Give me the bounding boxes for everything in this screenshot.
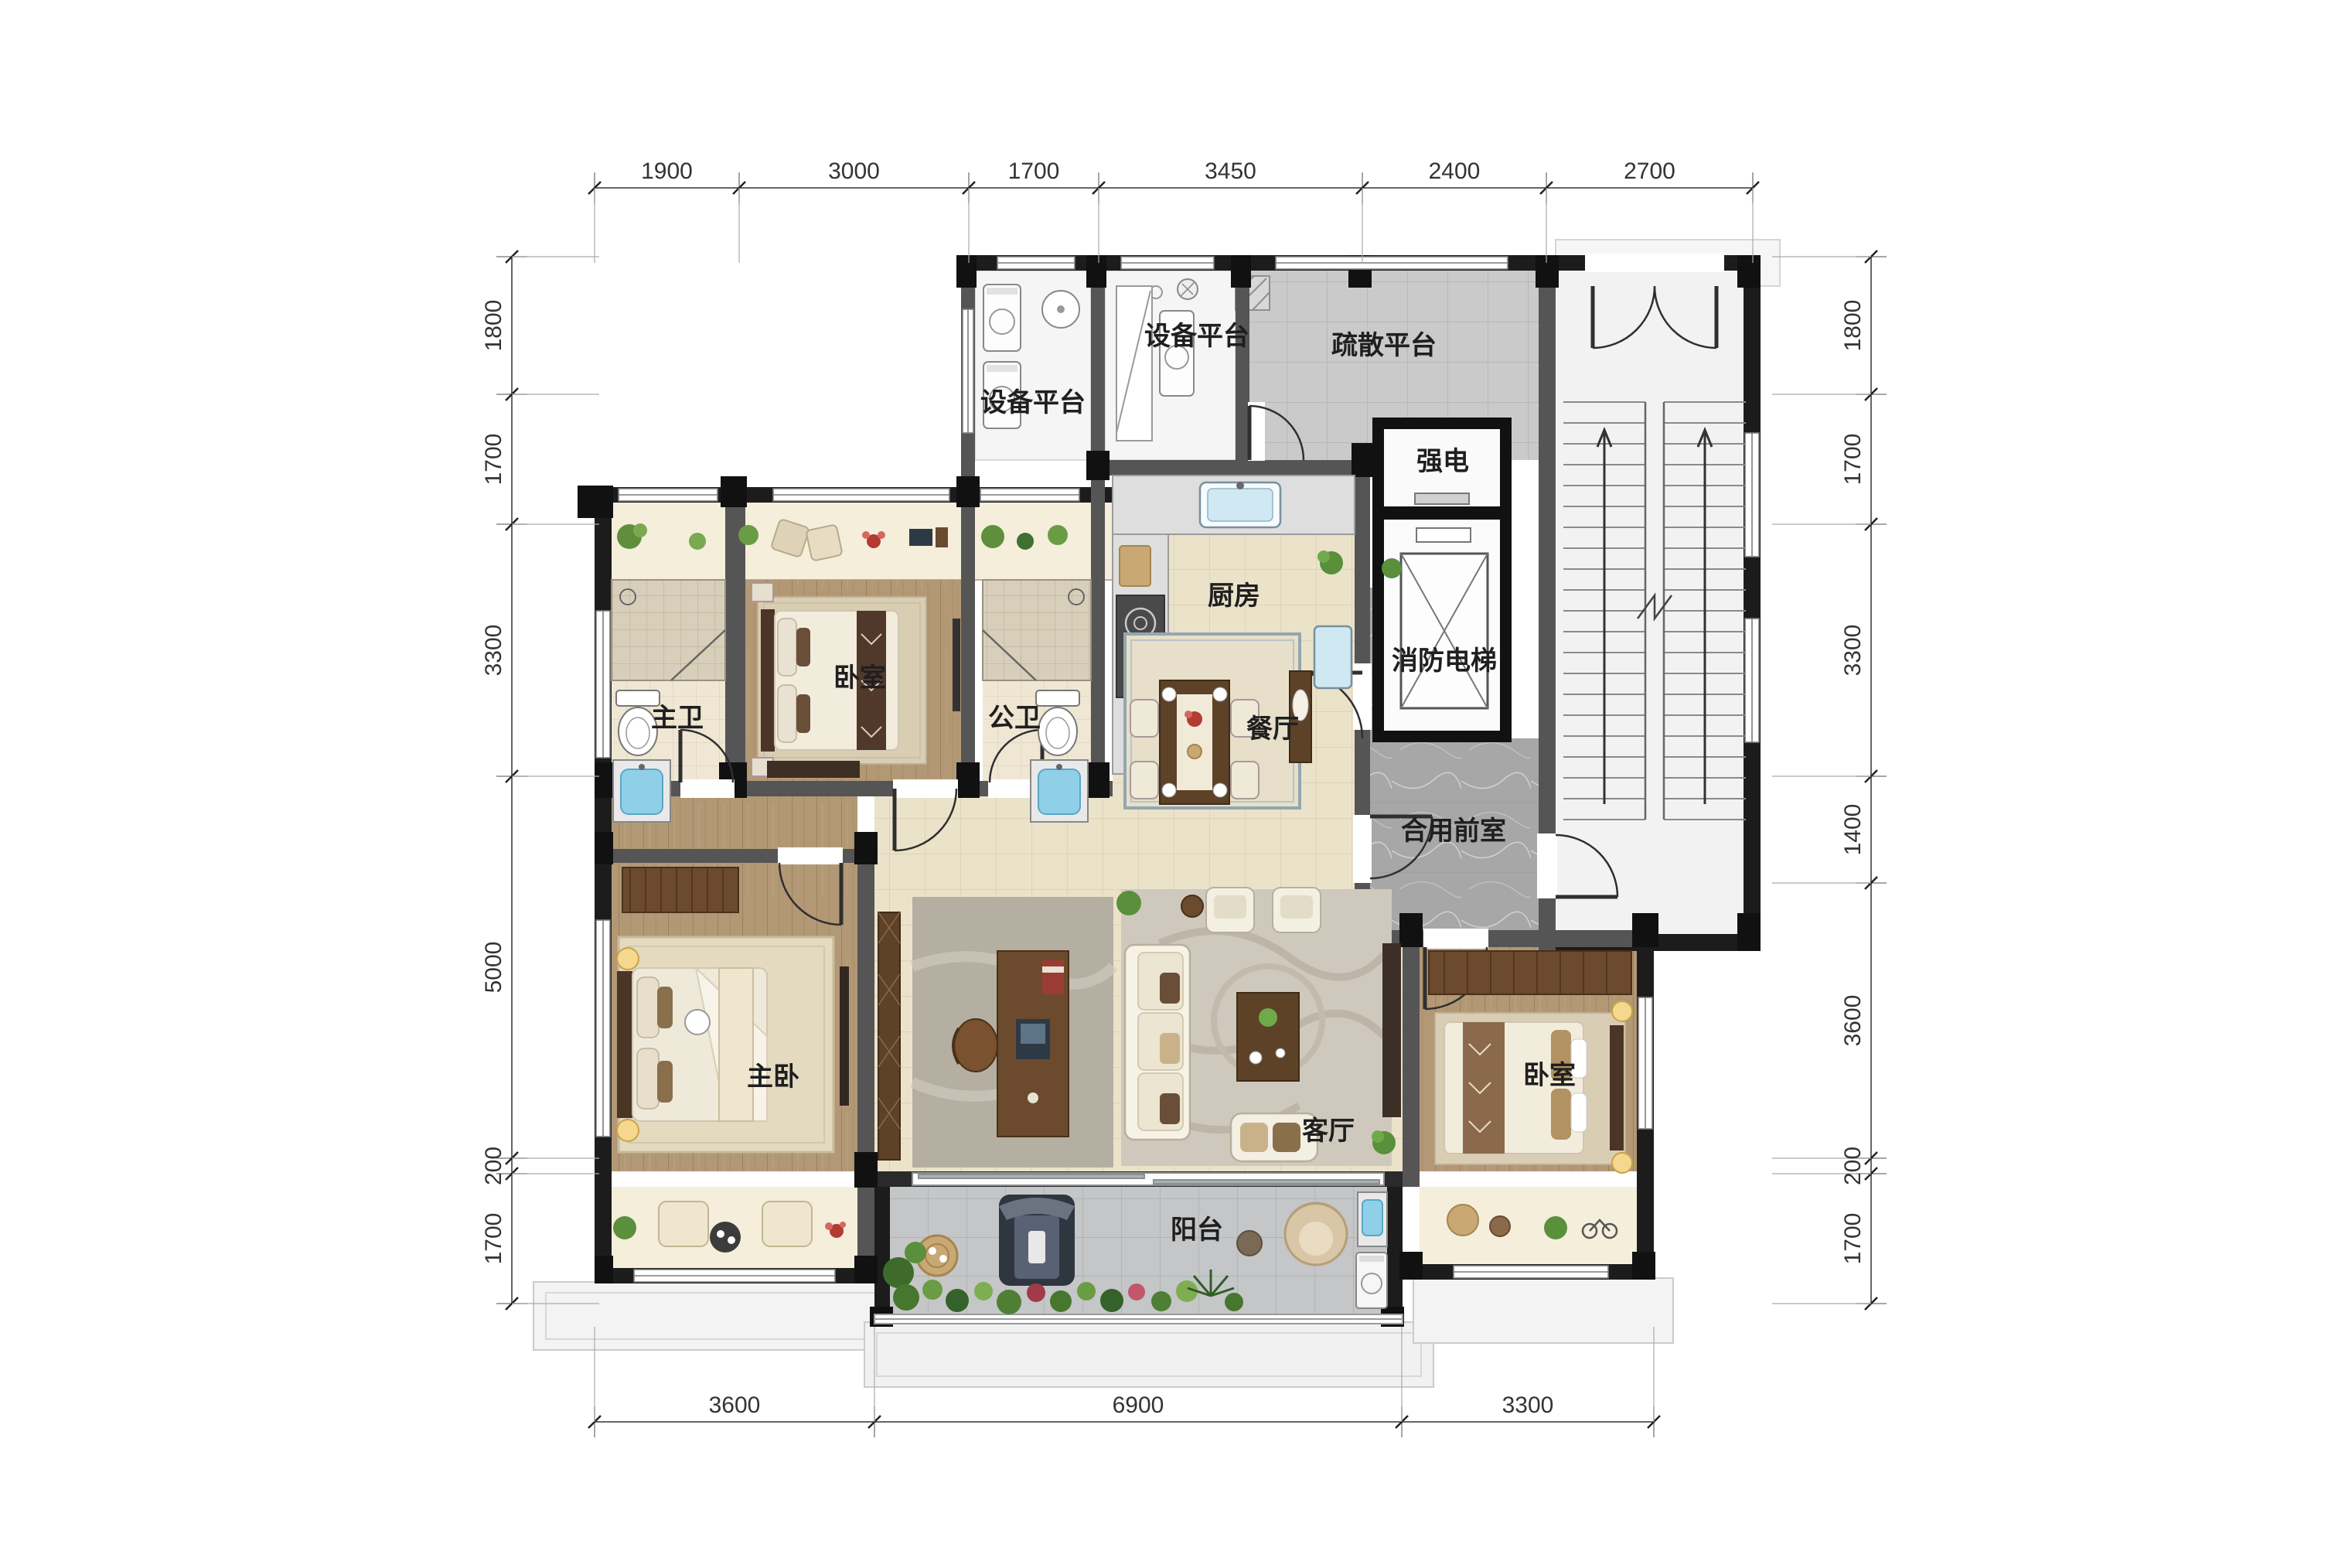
plant-icon xyxy=(1382,558,1402,578)
dim-label-right-5: 200 xyxy=(1840,1147,1866,1185)
plant-icon xyxy=(1116,891,1141,915)
room-label-strong-electric-room: 强电 xyxy=(1416,447,1469,476)
tray-icon xyxy=(710,1222,741,1253)
plant-icon xyxy=(1544,1216,1567,1239)
dim-label-left-0: 1800 xyxy=(481,300,506,352)
lamp-icon xyxy=(617,948,639,970)
cushion-icon xyxy=(762,1202,812,1246)
plant-icon xyxy=(689,533,706,550)
lamp-icon xyxy=(1612,1153,1632,1173)
dim-label-bottom-2: 3300 xyxy=(1502,1392,1554,1418)
bed-headboard xyxy=(617,971,632,1118)
dim-label-left-5: 1700 xyxy=(481,1213,506,1265)
dim-label-right-4: 3600 xyxy=(1840,995,1866,1047)
lamp-icon xyxy=(617,1120,639,1141)
bed-throw xyxy=(719,968,753,1121)
dim-label-right-3: 1400 xyxy=(1840,804,1866,856)
shower-area xyxy=(612,580,725,680)
bookshelf-icon xyxy=(878,912,900,1160)
pillow-icon xyxy=(778,685,796,742)
cushion-icon xyxy=(659,1202,708,1246)
dim-label-top-2: 1700 xyxy=(1008,159,1060,184)
tray-icon xyxy=(685,1010,710,1035)
dim-label-top-4: 2400 xyxy=(1429,159,1481,184)
dim-label-left-3: 5000 xyxy=(481,942,506,994)
room-label-public-bathroom: 公卫 xyxy=(988,704,1041,733)
dim-label-bottom-1: 6900 xyxy=(1113,1392,1164,1418)
dim-label-top-5: 2700 xyxy=(1624,159,1675,184)
room-label-equipment-platform-a: 设备平台 xyxy=(980,388,1086,418)
tv-cabinet-icon xyxy=(767,761,860,778)
room-label-living-room: 客厅 xyxy=(1302,1116,1355,1146)
room-label-kitchen: 厨房 xyxy=(1208,581,1260,611)
room-label-fire-elevator: 消防电梯 xyxy=(1392,646,1497,676)
nightstand-icon xyxy=(752,583,773,602)
coffee-table-icon xyxy=(1237,993,1299,1081)
plate-icon xyxy=(1447,1205,1478,1236)
side-table-icon xyxy=(1181,895,1203,917)
vanity-sink-icon xyxy=(613,760,670,822)
plant-icon xyxy=(613,1216,636,1239)
cutting-board-icon xyxy=(1120,546,1150,586)
sofa-icon xyxy=(1125,945,1190,1140)
room-label-bedroom-north: 卧室 xyxy=(833,663,886,693)
bed-throw xyxy=(1463,1022,1505,1154)
dim-label-right-0: 1800 xyxy=(1840,300,1866,352)
pillow-icon xyxy=(637,977,659,1038)
dim-label-top-3: 3450 xyxy=(1205,159,1256,184)
pillow-icon xyxy=(657,1061,673,1103)
dim-label-right-2: 3300 xyxy=(1840,625,1866,677)
mouse-icon xyxy=(1028,1092,1038,1103)
room-label-dining-room: 餐厅 xyxy=(1246,714,1299,744)
dim-label-bottom-0: 3600 xyxy=(709,1392,761,1418)
dim-chain-left: 18001700330050002001700 xyxy=(481,251,599,1310)
dining-chair-icon xyxy=(1231,762,1259,799)
plant-icon xyxy=(981,525,1004,548)
dim-label-top-1: 3000 xyxy=(828,159,880,184)
electric-panel-icon xyxy=(1415,493,1469,504)
balcony-sink-icon xyxy=(1358,1192,1387,1246)
floor-bay-north xyxy=(612,503,1113,580)
water-heater-icon xyxy=(1314,626,1352,688)
dining-chair-icon xyxy=(1130,700,1158,737)
room-label-shared-front-room: 合用前室 xyxy=(1401,816,1506,846)
dim-label-left-4: 200 xyxy=(481,1147,506,1185)
room-label-evacuation-platform: 疏散平台 xyxy=(1331,331,1437,360)
room-label-balcony: 阳台 xyxy=(1171,1215,1223,1245)
tv-icon xyxy=(953,619,960,711)
round-chair-icon xyxy=(1285,1203,1347,1265)
pillow-icon xyxy=(637,1048,659,1109)
pillow-icon xyxy=(796,628,810,666)
dim-label-right-1: 1700 xyxy=(1840,434,1866,486)
pillow-icon xyxy=(1551,1089,1571,1140)
plant-icon xyxy=(1048,525,1068,545)
elevator-icon xyxy=(1401,528,1488,708)
side-table-icon xyxy=(1237,1231,1262,1256)
study-furniture xyxy=(878,897,1113,1167)
books-icon xyxy=(909,529,932,546)
floor-plan-page: 设备平台设备平台疏散平台强电消防电梯合用前室厨房餐厅主卫卧室公卫主卧客厅卧室阳台… xyxy=(0,0,2352,1568)
room-label-bedroom-east: 卧室 xyxy=(1523,1060,1576,1090)
washing-machine-icon xyxy=(1356,1253,1387,1308)
toilet-icon xyxy=(1036,690,1079,755)
wardrobe-icon xyxy=(622,868,738,912)
lamp-icon xyxy=(1612,1001,1632,1021)
room-label-master-bedroom: 主卧 xyxy=(747,1062,799,1092)
books-icon xyxy=(1042,960,1064,994)
living-room-furniture xyxy=(1116,888,1401,1166)
office-chair-icon xyxy=(954,1019,997,1072)
bowl-icon xyxy=(1490,1216,1510,1236)
plant-icon xyxy=(1017,533,1034,550)
pillow-icon xyxy=(778,619,796,676)
room-label-equipment-platform-b: 设备平台 xyxy=(1144,322,1249,351)
dim-chain-right: 180017003300140036002001700 xyxy=(1772,251,1887,1310)
dim-label-right-6: 1700 xyxy=(1840,1213,1866,1265)
pillow-icon xyxy=(796,694,810,733)
wardrobe-icon xyxy=(1429,951,1631,994)
balcony-rail xyxy=(874,1314,1403,1324)
vanity-sink-icon xyxy=(1031,760,1088,822)
dining-chair-icon xyxy=(1130,762,1158,799)
floor-plan-drawing: 设备平台设备平台疏散平台强电消防电梯合用前室厨房餐厅主卫卧室公卫主卧客厅卧室阳台… xyxy=(0,0,2352,1568)
shower-area xyxy=(983,580,1091,680)
bed-headboard xyxy=(1610,1025,1624,1150)
dim-label-top-0: 1900 xyxy=(641,159,693,184)
dim-label-left-2: 3300 xyxy=(481,625,506,677)
tv-sideboard-icon xyxy=(1382,943,1401,1117)
tv-icon xyxy=(840,966,849,1106)
bed-headboard xyxy=(761,609,775,752)
cushion-icon xyxy=(806,524,842,561)
room-label-master-bathroom: 主卫 xyxy=(651,704,704,733)
sliding-door xyxy=(912,1173,1384,1185)
pillow-icon xyxy=(1571,1093,1587,1132)
dim-label-left-1: 1700 xyxy=(481,434,506,486)
treadmill-icon xyxy=(999,1195,1075,1286)
pillow-icon xyxy=(657,987,673,1028)
plant-icon xyxy=(738,525,758,545)
